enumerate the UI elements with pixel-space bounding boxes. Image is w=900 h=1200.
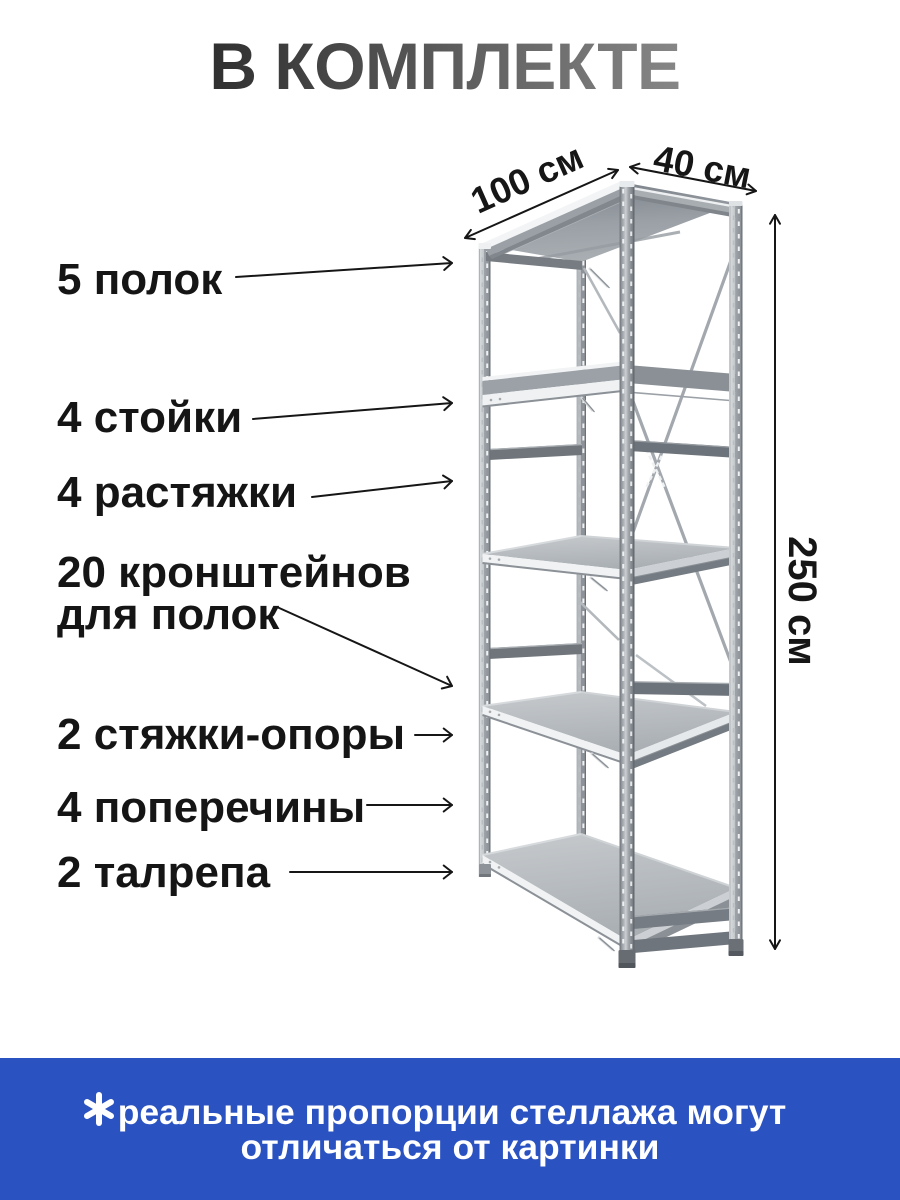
svg-text:250 см: 250 см: [780, 536, 824, 666]
svg-text:40 см: 40 см: [650, 137, 754, 196]
